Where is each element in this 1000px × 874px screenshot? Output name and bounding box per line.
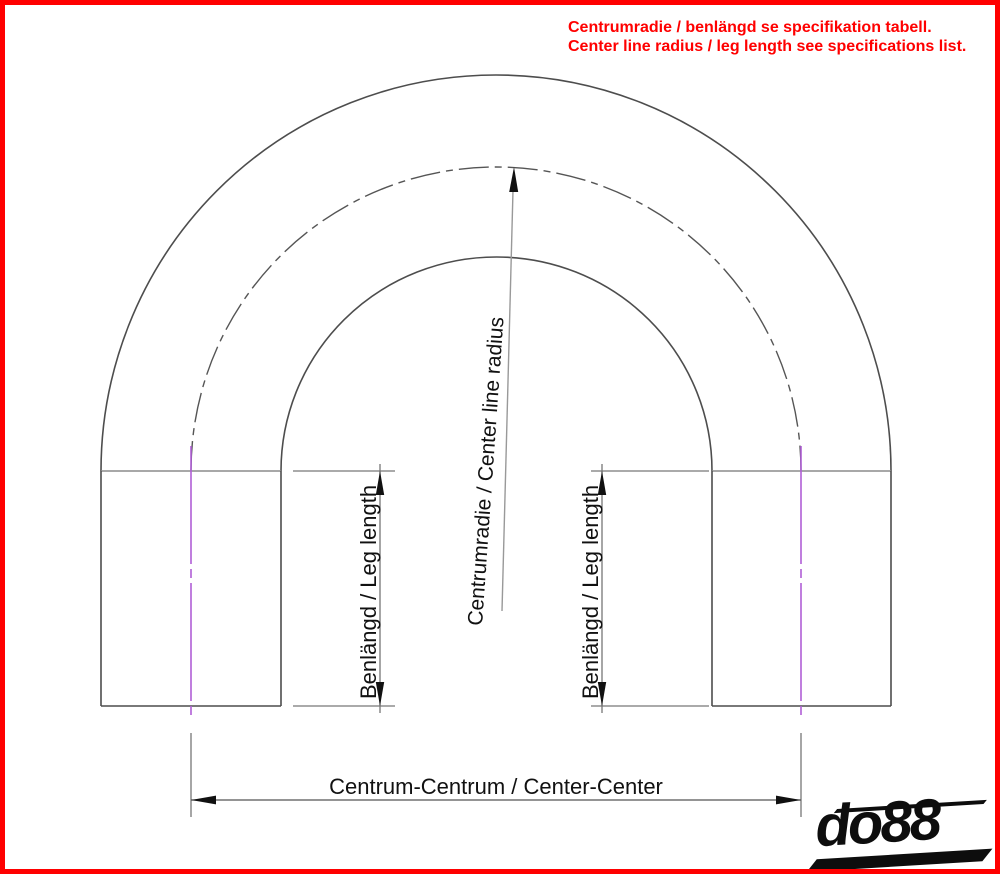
left-leg-length-label: Benlängd / Leg length — [356, 485, 381, 699]
logo-wordmark: do88 — [814, 791, 941, 856]
center-radius-label: Centrumradie / Center line radius — [464, 316, 509, 626]
right-leg-length-label: Benlängd / Leg length — [578, 485, 603, 699]
arrowhead-right-icon — [776, 796, 801, 805]
center-center-label: Centrum-Centrum / Center-Center — [329, 774, 663, 799]
do88-logo: do88 — [806, 791, 1000, 874]
drawing-sheet: Benlängd / Leg length Benlängd / Leg len… — [0, 0, 1000, 874]
arrowhead-up-icon — [509, 167, 518, 192]
radius-dim-line — [502, 175, 513, 611]
specification-note: Centrumradie / benlängd se specifikation… — [568, 18, 966, 56]
specification-note-line1: Centrumradie / benlängd se specifikation… — [568, 18, 966, 37]
arrowhead-left-icon — [191, 796, 216, 805]
specification-note-line2: Center line radius / leg length see spec… — [568, 37, 966, 56]
pipe-bend-diagram: Benlängd / Leg length Benlängd / Leg len… — [5, 5, 1000, 874]
